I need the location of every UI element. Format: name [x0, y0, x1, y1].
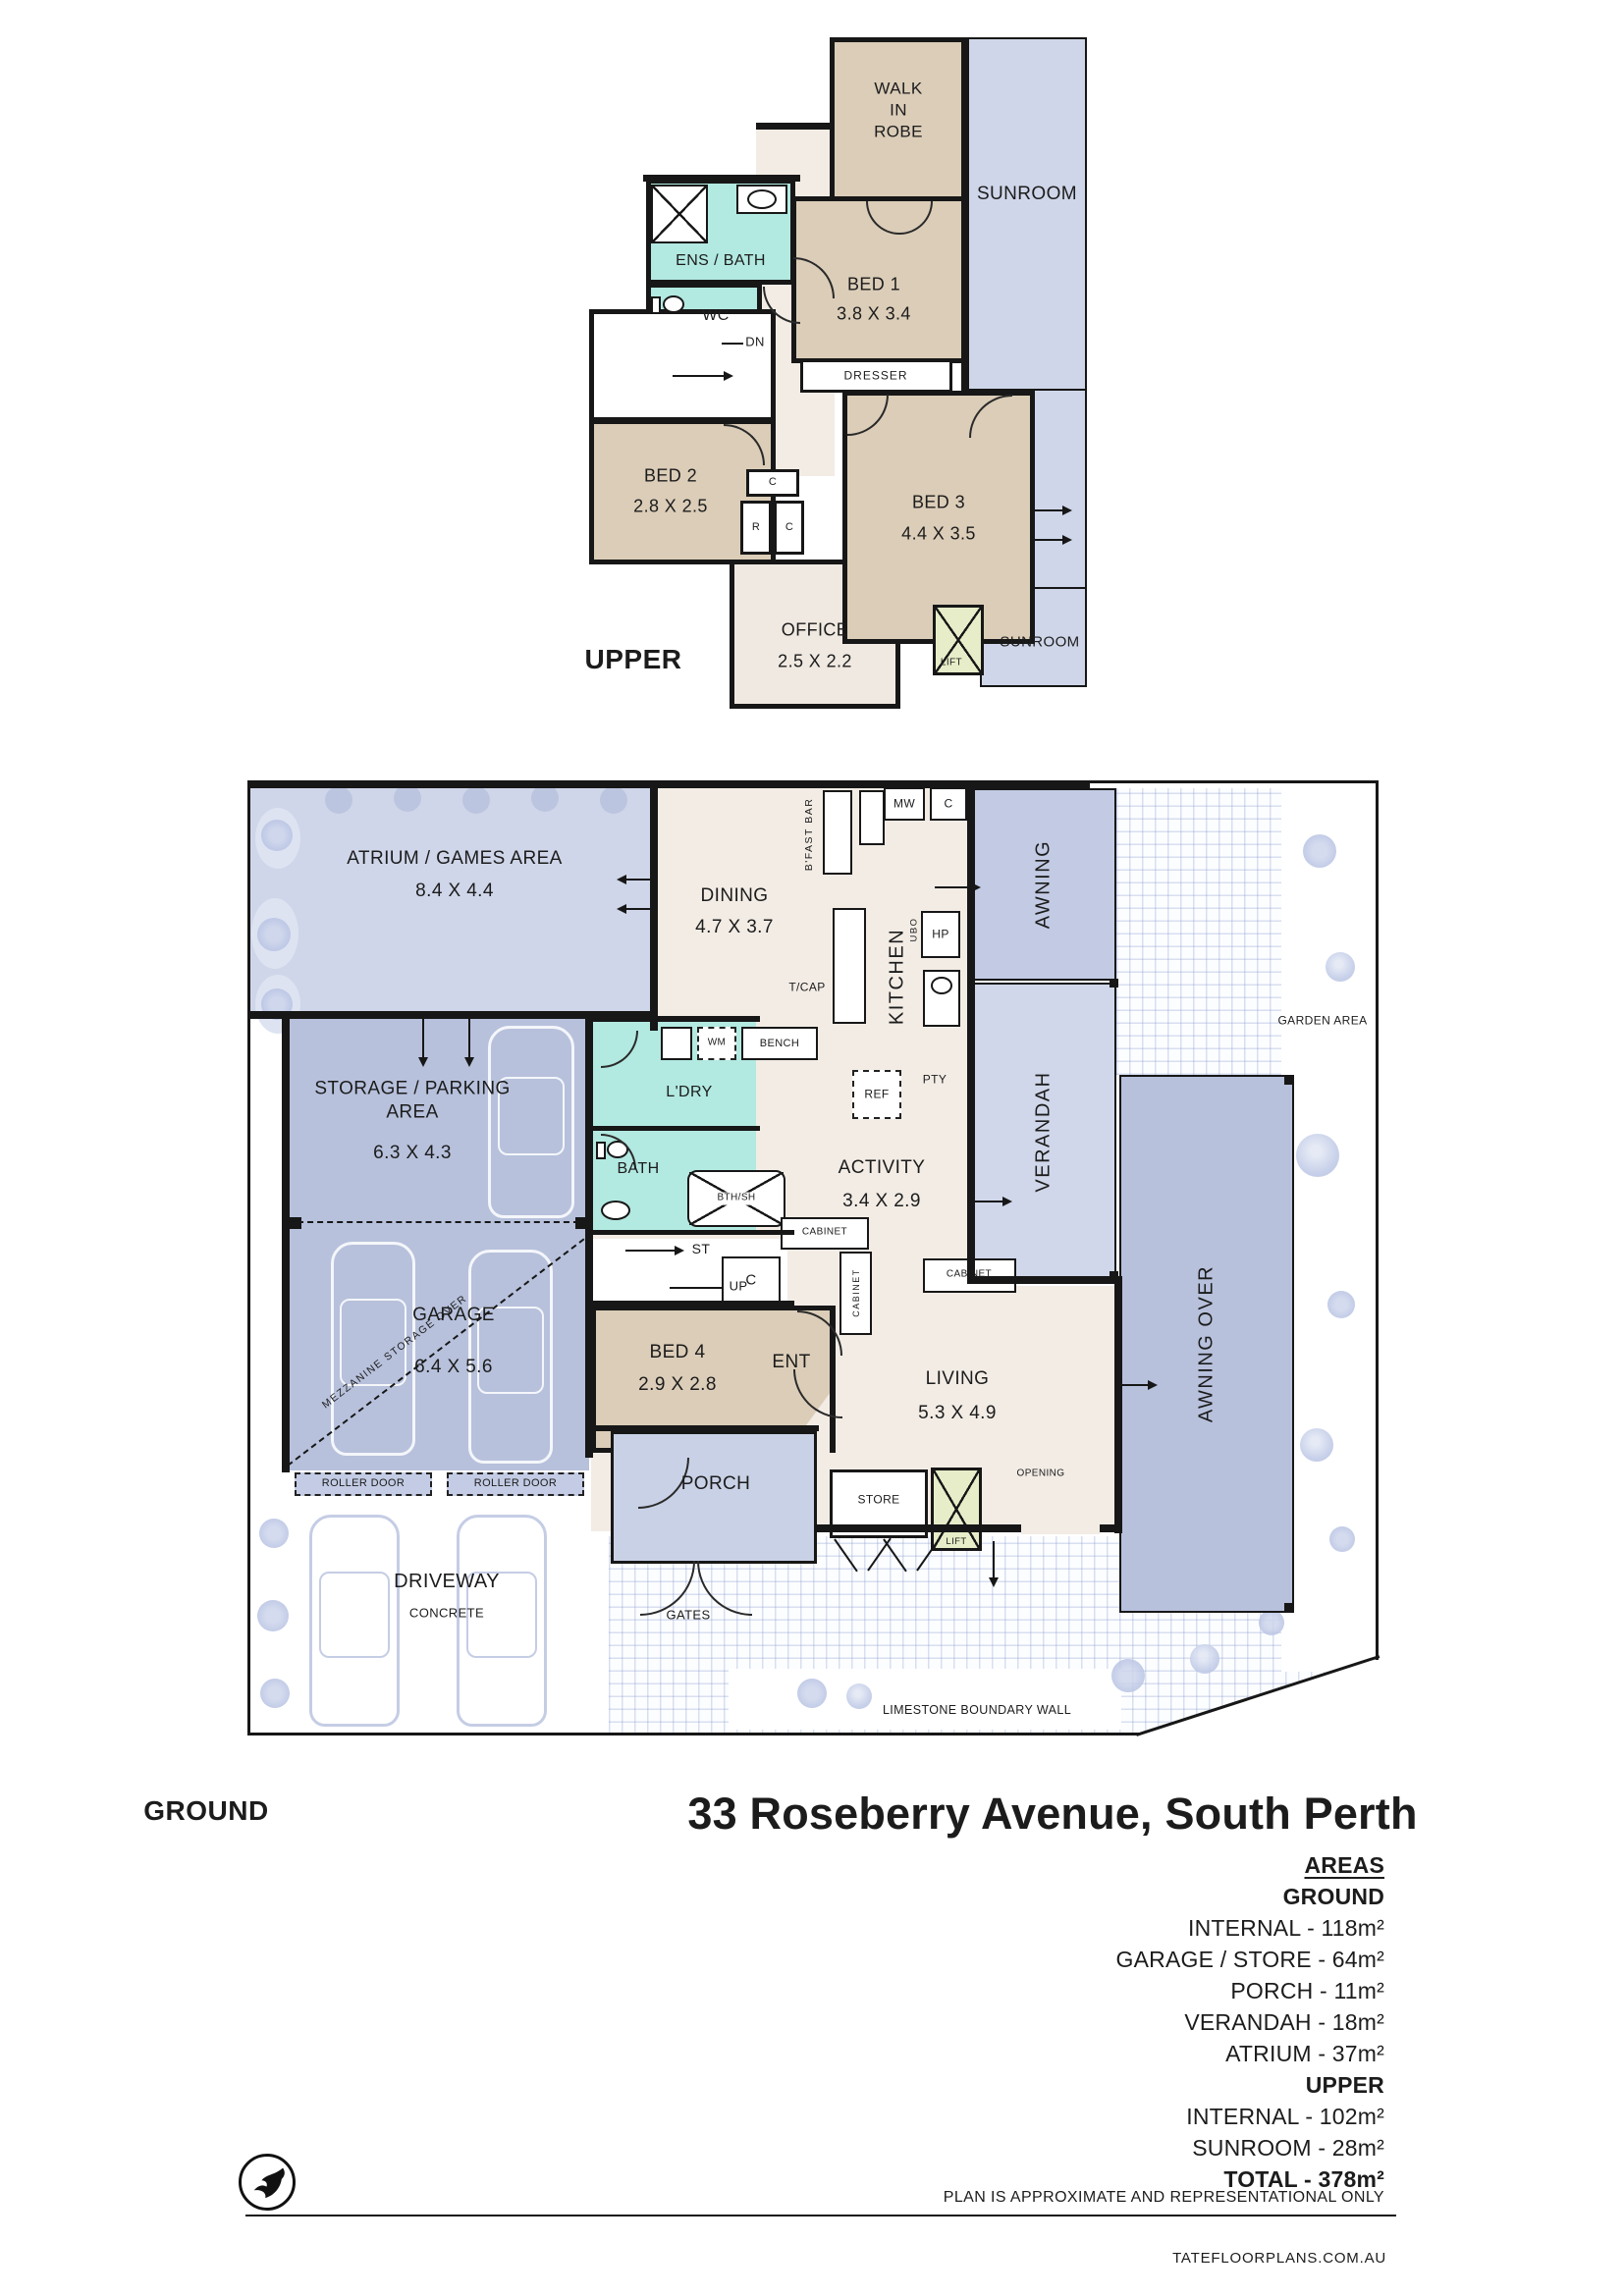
- post: [1284, 1075, 1294, 1085]
- shrub-dot: [325, 786, 352, 814]
- label-bed4-dim: 2.9 X 2.8: [638, 1373, 717, 1397]
- label-awning-over: AWNING OVER: [1196, 1265, 1218, 1422]
- label-limestone-wall: LIMESTONE BOUNDARY WALL: [883, 1702, 1071, 1718]
- areas-upper-heading: UPPER: [884, 2069, 1384, 2101]
- boundary-line: [1090, 780, 1379, 783]
- label-bath: BATH: [617, 1159, 659, 1179]
- label-store: STORE: [857, 1492, 899, 1507]
- boundary-garden-bed: [729, 1669, 1121, 1730]
- boundary-line-right: [1376, 780, 1379, 1660]
- plant-icon: [846, 1683, 872, 1709]
- door-arrow: [935, 886, 979, 888]
- label-bed1: BED 1: [847, 273, 900, 295]
- label-office-dim: 2.5 X 2.2: [778, 650, 852, 672]
- label-bed4: BED 4: [650, 1341, 706, 1364]
- label-bed2: BED 2: [644, 464, 697, 487]
- shrub-dot: [462, 786, 490, 814]
- label-driveway: DRIVEWAY: [394, 1570, 500, 1595]
- label-bfast-bar: B'FAST BAR: [803, 798, 815, 872]
- label-lift-ground: LIFT: [946, 1536, 966, 1548]
- label-cabinet-right: CABINET: [947, 1269, 992, 1282]
- label-activity: ACTIVITY: [839, 1156, 926, 1180]
- plant-icon: [1300, 1428, 1333, 1462]
- label-bench: BENCH: [760, 1037, 800, 1050]
- basin-icon: [747, 189, 777, 209]
- label-gates: GATES: [666, 1608, 710, 1625]
- label-tcap: T/CAP: [788, 980, 825, 994]
- up-leader-line: [670, 1287, 724, 1289]
- areas-ground-heading: GROUND: [884, 1881, 1384, 1912]
- label-garage-dim: 6.4 X 5.6: [414, 1356, 493, 1379]
- label-bed3: BED 3: [912, 491, 965, 513]
- plant-icon: [261, 820, 293, 851]
- laundry-trough-icon: [661, 1027, 692, 1060]
- label-ref: REF: [864, 1087, 889, 1101]
- breakfast-bar-counter: [823, 790, 852, 875]
- label-concrete: CONCRETE: [409, 1606, 484, 1623]
- label-atrium: ATRIUM / GAMES AREA: [347, 847, 562, 871]
- page-title: 33 Roseberry Avenue, South Perth: [687, 1786, 1417, 1842]
- label-mw: MW: [893, 796, 915, 811]
- bird-icon: [242, 2157, 292, 2207]
- wall: [756, 123, 835, 130]
- door-arrow: [1116, 1384, 1156, 1386]
- window-arrow: [619, 908, 656, 910]
- footer-divider: [245, 2215, 1396, 2216]
- label-awning: AWNING: [1033, 840, 1056, 929]
- plant-icon: [1327, 1291, 1355, 1318]
- window-arrow: [1031, 539, 1070, 541]
- label-verandah: VERANDAH: [1033, 1071, 1056, 1192]
- label-ent: ENT: [772, 1351, 810, 1374]
- label-wc: WC: [702, 306, 729, 326]
- label-closet-c1: C: [769, 475, 777, 489]
- label-wm: WM: [708, 1038, 727, 1050]
- wall: [591, 1016, 760, 1022]
- wall: [967, 1075, 975, 1283]
- label-c-kitchen: C: [944, 796, 952, 811]
- breakfast-bar-counter: [859, 790, 885, 845]
- wall: [961, 37, 969, 391]
- window-arrow: [1031, 509, 1070, 511]
- sink-bowl-icon: [931, 977, 952, 994]
- areas-summary: AREAS GROUND INTERNAL - 118m² GARAGE / S…: [884, 1849, 1384, 2195]
- plant-icon: [1259, 1610, 1284, 1635]
- window-arrow: [619, 879, 656, 881]
- boundary-line-bottom: [247, 1733, 1139, 1735]
- room-sunroom-upper: [967, 37, 1087, 391]
- label-dresser: DRESSER: [843, 368, 907, 383]
- label-c-mid: C: [745, 1270, 756, 1289]
- shrub-dot: [600, 786, 627, 814]
- plant-icon: [1326, 952, 1355, 982]
- label-ubo: UBO: [909, 917, 920, 941]
- area-item: INTERNAL - 118m²: [884, 1912, 1384, 1944]
- website-text: TATEFLOORPLANS.COM.AU: [797, 2250, 1386, 2267]
- plant-icon: [257, 918, 291, 951]
- label-sunroom-lower: SUNROOM: [1000, 632, 1079, 651]
- tate-logo: [239, 2154, 296, 2211]
- area-item: PORCH - 11m²: [884, 1975, 1384, 2006]
- label-office: OFFICE: [782, 618, 848, 641]
- label-cabinet-top: CABINET: [802, 1227, 847, 1240]
- room-sunroom-column: [1035, 391, 1087, 616]
- label-roller-door-1: ROLLER DOOR: [322, 1476, 405, 1490]
- post: [1284, 1603, 1294, 1613]
- plant-icon: [797, 1679, 827, 1708]
- area-item: SUNROOM - 28m²: [884, 2132, 1384, 2163]
- plant-icon: [260, 1679, 290, 1708]
- label-bed1-dim: 3.8 X 3.4: [837, 302, 911, 325]
- label-bthsh: BTH/SH: [715, 1193, 757, 1205]
- label-dn: DN: [745, 335, 765, 351]
- wall: [575, 1217, 589, 1229]
- label-st: ST: [692, 1241, 711, 1258]
- wall: [591, 1301, 794, 1306]
- wall: [967, 780, 975, 1075]
- dn-leader-line: [722, 343, 743, 345]
- plant-icon: [1296, 1134, 1339, 1177]
- label-activity-dim: 3.4 X 2.9: [842, 1190, 921, 1213]
- stairs-upper: [589, 309, 776, 422]
- label-kitchen: KITCHEN: [887, 929, 909, 1025]
- label-bed2-dim: 2.8 X 2.5: [633, 495, 708, 517]
- areas-heading: AREAS: [884, 1849, 1384, 1881]
- label-sunroom-upper: SUNROOM: [977, 183, 1077, 206]
- door-arrow: [969, 1201, 1010, 1202]
- wall: [282, 1011, 290, 1472]
- area-item: ATRIUM - 37m²: [884, 2038, 1384, 2069]
- paved-area: [1116, 788, 1298, 1075]
- wall: [1114, 1276, 1122, 1533]
- label-closet-c2: C: [785, 520, 793, 534]
- area-item: VERANDAH - 18m²: [884, 2006, 1384, 2038]
- post: [1110, 979, 1118, 988]
- label-cabinet-vert: CABINET: [851, 1268, 861, 1317]
- wall: [247, 780, 1090, 788]
- label-ldry: L'DRY: [666, 1083, 712, 1102]
- wall: [591, 1425, 819, 1431]
- area-item: GARAGE / STORE - 64m²: [884, 1944, 1384, 1975]
- upper-floor-label: UPPER: [585, 642, 682, 677]
- shrub-dot: [394, 784, 421, 812]
- entry-arrow: [468, 1014, 470, 1065]
- plant-icon: [1329, 1526, 1355, 1552]
- ground-floor-plan: ATRIUM / GAMES AREA 8.4 X 4.4 DINING 4.7…: [247, 780, 1379, 1735]
- stair-direction-arrow: [625, 1250, 682, 1252]
- area-item: INTERNAL - 102m²: [884, 2101, 1384, 2132]
- wall: [650, 780, 658, 1031]
- label-porch: PORCH: [681, 1472, 751, 1496]
- plant-icon: [1190, 1644, 1219, 1674]
- label-hp: HP: [932, 927, 948, 941]
- shrub-dot: [531, 784, 559, 812]
- exit-arrow: [993, 1541, 995, 1585]
- label-lift-upper: LIFT: [941, 658, 962, 670]
- label-dining: DINING: [701, 884, 769, 908]
- label-opening: OPENING: [1017, 1468, 1065, 1481]
- plant-icon: [259, 1519, 289, 1548]
- label-garden-area: GARDEN AREA: [1277, 1013, 1367, 1028]
- shower-icon: [651, 185, 708, 243]
- wall-dashed: [288, 1221, 589, 1223]
- plant-icon: [1303, 834, 1336, 868]
- label-atrium-dim: 8.4 X 4.4: [415, 880, 494, 903]
- label-ens-bath: ENS / BATH: [676, 251, 766, 271]
- label-garage: GARAGE: [412, 1304, 495, 1327]
- wall: [591, 1230, 794, 1235]
- label-closet-r: R: [752, 520, 760, 534]
- label-roller-door-2: ROLLER DOOR: [474, 1476, 557, 1490]
- wall: [288, 1217, 301, 1229]
- boundary-line-left: [247, 780, 250, 1735]
- plant-icon: [1111, 1659, 1145, 1692]
- floorplan-page: WALK IN ROBE SUNROOM SUNROOM ENS / BATH …: [0, 0, 1624, 2296]
- wall-opening: [1021, 1522, 1100, 1534]
- kitchen-cupboard: [833, 908, 866, 1024]
- label-living: LIVING: [926, 1367, 990, 1391]
- disclaimer-text: PLAN IS APPROXIMATE AND REPRESENTATIONAL…: [599, 2189, 1384, 2207]
- upper-floor-plan: WALK IN ROBE SUNROOM SUNROOM ENS / BATH …: [388, 29, 1095, 697]
- ground-floor-label: GROUND: [143, 1793, 268, 1829]
- basin-icon: [601, 1201, 630, 1220]
- label-dining-dim: 4.7 X 3.7: [695, 916, 774, 939]
- entry-arrow: [422, 1014, 424, 1065]
- label-storage: STORAGE / PARKING AREA: [314, 1078, 510, 1126]
- wall: [591, 1126, 760, 1131]
- label-living-dim: 5.3 X 4.9: [918, 1402, 997, 1425]
- car-icon: [309, 1515, 400, 1727]
- label-walk-in-robe: WALK IN ROBE: [874, 78, 923, 141]
- wall: [643, 175, 800, 182]
- stair-direction-arrow: [673, 375, 731, 377]
- label-bed3-dim: 4.4 X 3.5: [901, 522, 976, 545]
- label-pty: PTY: [923, 1072, 947, 1087]
- plant-icon: [257, 1600, 289, 1631]
- toilet-tank-icon: [651, 296, 661, 314]
- label-storage-dim: 6.3 X 4.3: [373, 1142, 452, 1165]
- toilet-icon: [663, 295, 684, 313]
